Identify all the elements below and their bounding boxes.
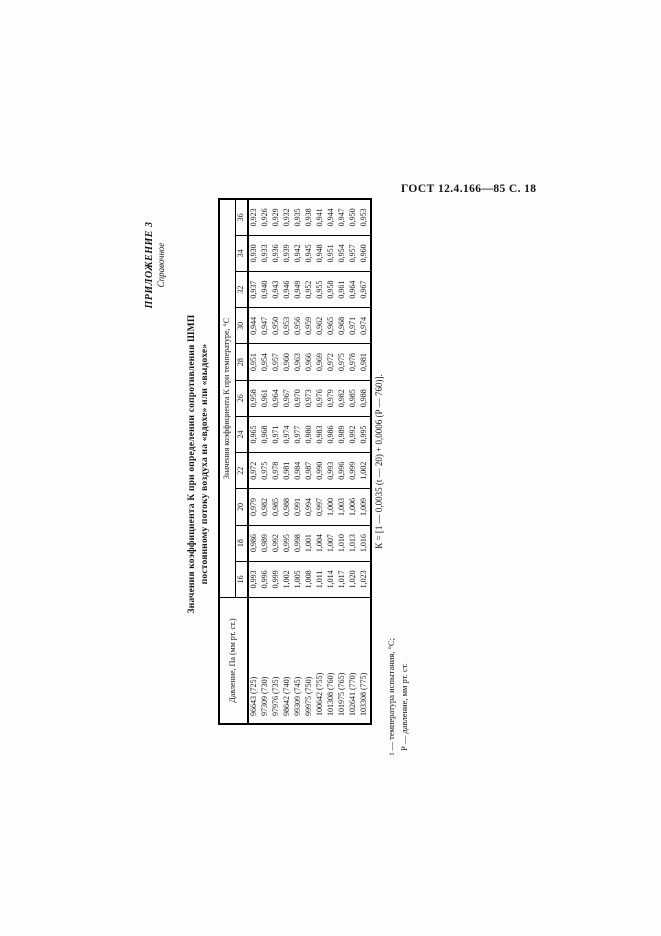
k-value-cell: 0,962 [315, 308, 326, 344]
k-value-cell: 0,938 [304, 199, 315, 235]
k-value-cell: 0,977 [293, 416, 304, 452]
k-value-cell: 0,926 [260, 199, 271, 235]
k-value-cell: 0,997 [315, 489, 326, 525]
table-row: 97976 (735)0,9990,9920,9850,9780,9710,96… [271, 199, 282, 724]
k-value-cell: 0,999 [271, 561, 282, 597]
temp-col-header: 34 [235, 235, 248, 271]
temp-col-header: 16 [235, 561, 248, 597]
k-value-cell: 0,932 [282, 199, 293, 235]
k-value-cell: 1,014 [326, 561, 337, 597]
table-row: 97309 (730)0,9960,9890,9820,9750,9680,96… [260, 199, 271, 724]
k-value-cell: 0,964 [271, 380, 282, 416]
k-value-cell: 0,974 [359, 308, 371, 344]
k-value-cell: 0,936 [271, 235, 282, 271]
k-value-cell: 0,968 [337, 308, 348, 344]
k-table-body: 96643 (725)0,9930,9860,9790,9720,9650,95… [248, 199, 371, 724]
k-value-cell: 0,933 [260, 235, 271, 271]
k-value-cell: 0,981 [282, 453, 293, 489]
k-value-cell: 0,947 [337, 199, 348, 235]
k-value-cell: 0,968 [260, 416, 271, 452]
table-title: Значения коэффициента К при определении … [186, 198, 211, 730]
table-row: 103308 (775)1,0231,0161,0091,0020,9950,9… [359, 199, 371, 724]
k-value-cell: 0,979 [326, 380, 337, 416]
appendix-block: ПРИЛОЖЕНИЕ 3 Справочное [144, 190, 166, 340]
k-value-cell: 0,986 [248, 525, 260, 561]
k-value-cell: 0,965 [326, 308, 337, 344]
k-value-cell: 0,990 [315, 453, 326, 489]
temp-col-header: 36 [235, 199, 248, 235]
k-value-cell: 0,956 [293, 308, 304, 344]
k-value-cell: 0,951 [326, 235, 337, 271]
pressure-cell: 99309 (745) [293, 598, 304, 725]
k-value-cell: 1,008 [304, 561, 315, 597]
k-value-cell: 0,950 [271, 308, 282, 344]
k-value-cell: 0,970 [293, 380, 304, 416]
temp-col-header: 24 [235, 416, 248, 452]
table-row: 99975 (750)1,0081,0010,9940,9870,9800,97… [304, 199, 315, 724]
k-value-cell: 0,989 [260, 525, 271, 561]
k-value-cell: 0,947 [260, 308, 271, 344]
temp-col-header: 22 [235, 453, 248, 489]
k-value-cell: 0,951 [248, 344, 260, 380]
table-row: 102641 (770)1,0201,0131,0060,9990,9920,9… [348, 199, 359, 724]
k-value-cell: 0,998 [293, 525, 304, 561]
k-table: Давление, Па (мм рт. ст.) Значения коэфф… [218, 198, 372, 725]
k-value-cell: 0,965 [248, 416, 260, 452]
k-value-cell: 0,978 [348, 344, 359, 380]
k-value-cell: 0,964 [348, 272, 359, 308]
k-value-cell: 0,966 [304, 344, 315, 380]
k-value-cell: 0,929 [271, 199, 282, 235]
footnote-pressure: Р — давление, мм рт. ст. [398, 638, 411, 755]
table-row: 100642 (755)1,0111,0040,9970,9900,9830,9… [315, 199, 326, 724]
k-value-cell: 0,971 [348, 308, 359, 344]
pressure-cell: 103308 (775) [359, 598, 371, 725]
k-value-cell: 1,003 [337, 489, 348, 525]
k-value-cell: 1,002 [282, 561, 293, 597]
rotated-content: ПРИЛОЖЕНИЕ 3 Справочное Значения коэффиц… [0, 0, 661, 936]
k-value-cell: 1,009 [359, 489, 371, 525]
temp-col-header: 26 [235, 380, 248, 416]
k-value-cell: 0,967 [282, 380, 293, 416]
temp-col-header: 18 [235, 525, 248, 561]
footnotes: t — температура испытания, °С; Р — давле… [385, 638, 410, 755]
table-title-line2: постоянному потоку воздуха на «вдохе» ил… [199, 198, 212, 730]
k-value-cell: 0,974 [282, 416, 293, 452]
k-value-cell: 1,007 [326, 525, 337, 561]
k-value-cell: 0,953 [359, 199, 371, 235]
k-value-cell: 0,954 [337, 235, 348, 271]
k-value-cell: 1,006 [348, 489, 359, 525]
k-value-cell: 0,952 [304, 272, 315, 308]
temp-col-header: 30 [235, 308, 248, 344]
k-value-cell: 0,937 [248, 272, 260, 308]
k-value-cell: 0,935 [293, 199, 304, 235]
k-value-cell: 0,961 [260, 380, 271, 416]
k-value-cell: 0,999 [348, 453, 359, 489]
k-value-cell: 0,972 [248, 453, 260, 489]
k-value-cell: 0,972 [326, 344, 337, 380]
temp-col-header: 28 [235, 344, 248, 380]
k-value-cell: 0,995 [282, 525, 293, 561]
k-value-cell: 0,993 [326, 453, 337, 489]
k-value-cell: 1,005 [293, 561, 304, 597]
pressure-cell: 99975 (750) [304, 598, 315, 725]
k-value-cell: 0,943 [271, 272, 282, 308]
k-value-cell: 0,986 [326, 416, 337, 452]
k-value-cell: 1,001 [304, 525, 315, 561]
appendix-label: ПРИЛОЖЕНИЕ 3 [144, 190, 155, 340]
k-value-cell: 1,004 [315, 525, 326, 561]
k-value-cell: 0,994 [304, 489, 315, 525]
k-value-cell: 0,982 [260, 489, 271, 525]
pressure-column-header: Давление, Па (мм рт. ст.) [219, 598, 248, 725]
k-value-cell: 0,953 [282, 308, 293, 344]
k-value-cell: 1,010 [337, 525, 348, 561]
k-value-cell: 0,976 [315, 380, 326, 416]
table-row: 101975 (765)1,0171,0101,0030,9960,9890,9… [337, 199, 348, 724]
k-value-cell: 0,957 [271, 344, 282, 380]
k-value-cell: 1,002 [359, 453, 371, 489]
k-value-cell: 0,987 [304, 453, 315, 489]
k-value-cell: 0,959 [304, 308, 315, 344]
appendix-sublabel: Справочное [156, 190, 166, 340]
values-header: Значения коэффициента К при температуре,… [219, 199, 235, 598]
k-value-cell: 0,946 [282, 272, 293, 308]
k-value-cell: 0,992 [271, 525, 282, 561]
k-value-cell: 0,984 [293, 453, 304, 489]
k-value-cell: 0,979 [248, 489, 260, 525]
pressure-cell: 97976 (735) [271, 598, 282, 725]
pressure-cell: 102641 (770) [348, 598, 359, 725]
k-value-cell: 0,996 [337, 453, 348, 489]
table-row: 96643 (725)0,9930,9860,9790,9720,9650,95… [248, 199, 260, 724]
k-value-cell: 0,961 [337, 272, 348, 308]
k-value-cell: 0,945 [304, 235, 315, 271]
k-value-cell: 0,988 [282, 489, 293, 525]
k-value-cell: 1,000 [326, 489, 337, 525]
values-header-row: Давление, Па (мм рт. ст.) Значения коэфф… [219, 199, 235, 724]
table-row: 101308 (760)1,0141,0071,0000,9930,9860,9… [326, 199, 337, 724]
k-value-cell: 0,960 [359, 235, 371, 271]
pressure-cell: 98642 (740) [282, 598, 293, 725]
k-value-cell: 0,975 [260, 453, 271, 489]
k-value-cell: 0,992 [348, 416, 359, 452]
k-value-cell: 0,982 [337, 380, 348, 416]
document-page: ГОСТ 12.4.166—85 С. 18 ПРИЛОЖЕНИЕ 3 Спра… [0, 0, 661, 936]
k-value-cell: 0,958 [248, 380, 260, 416]
k-value-cell: 0,960 [282, 344, 293, 380]
k-value-cell: 0,981 [359, 344, 371, 380]
k-value-cell: 0,978 [271, 453, 282, 489]
k-value-cell: 0,980 [304, 416, 315, 452]
k-value-cell: 0,948 [315, 235, 326, 271]
k-value-cell: 0,995 [359, 416, 371, 452]
k-value-cell: 0,944 [248, 308, 260, 344]
pressure-cell: 101975 (765) [337, 598, 348, 725]
table-row: 99309 (745)1,0050,9980,9910,9840,9770,97… [293, 199, 304, 724]
k-value-cell: 0,975 [337, 344, 348, 380]
temp-col-header: 32 [235, 272, 248, 308]
k-value-cell: 0,983 [315, 416, 326, 452]
k-value-cell: 1,020 [348, 561, 359, 597]
k-value-cell: 0,971 [271, 416, 282, 452]
temp-col-header: 20 [235, 489, 248, 525]
pressure-cell: 97309 (730) [260, 598, 271, 725]
pressure-cell: 96643 (725) [248, 598, 260, 725]
k-value-cell: 1,011 [315, 561, 326, 597]
k-value-cell: 1,017 [337, 561, 348, 597]
k-table-head: Давление, Па (мм рт. ст.) Значения коэфф… [219, 199, 248, 724]
k-value-cell: 0,930 [248, 235, 260, 271]
k-value-cell: 0,954 [260, 344, 271, 380]
k-value-cell: 1,013 [348, 525, 359, 561]
k-value-cell: 0,955 [315, 272, 326, 308]
k-value-cell: 0,940 [260, 272, 271, 308]
k-value-cell: 0,958 [326, 272, 337, 308]
k-value-cell: 0,923 [248, 199, 260, 235]
k-value-cell: 0,993 [248, 561, 260, 597]
pressure-cell: 101308 (760) [326, 598, 337, 725]
k-value-cell: 0,973 [304, 380, 315, 416]
k-value-cell: 0,991 [293, 489, 304, 525]
k-value-cell: 0,957 [348, 235, 359, 271]
k-value-cell: 1,023 [359, 561, 371, 597]
k-value-cell: 0,969 [315, 344, 326, 380]
table-row: 98642 (740)1,0020,9950,9880,9810,9740,96… [282, 199, 293, 724]
k-value-cell: 0,950 [348, 199, 359, 235]
k-value-cell: 0,944 [326, 199, 337, 235]
k-value-cell: 1,016 [359, 525, 371, 561]
k-value-cell: 0,967 [359, 272, 371, 308]
k-value-cell: 0,942 [293, 235, 304, 271]
k-value-cell: 0,963 [293, 344, 304, 380]
formula: К = [1 — 0,0035 (t — 20) + 0,0006 (Р — 7… [374, 198, 384, 725]
k-value-cell: 0,949 [293, 272, 304, 308]
k-value-cell: 0,939 [282, 235, 293, 271]
footnote-temperature: t — температура испытания, °С; [385, 638, 398, 755]
pressure-cell: 100642 (755) [315, 598, 326, 725]
k-value-cell: 0,988 [359, 380, 371, 416]
k-value-cell: 0,985 [271, 489, 282, 525]
k-value-cell: 0,989 [337, 416, 348, 452]
k-value-cell: 0,985 [348, 380, 359, 416]
table-title-line1: Значения коэффициента К при определении … [186, 198, 199, 730]
k-value-cell: 0,996 [260, 561, 271, 597]
k-value-cell: 0,941 [315, 199, 326, 235]
